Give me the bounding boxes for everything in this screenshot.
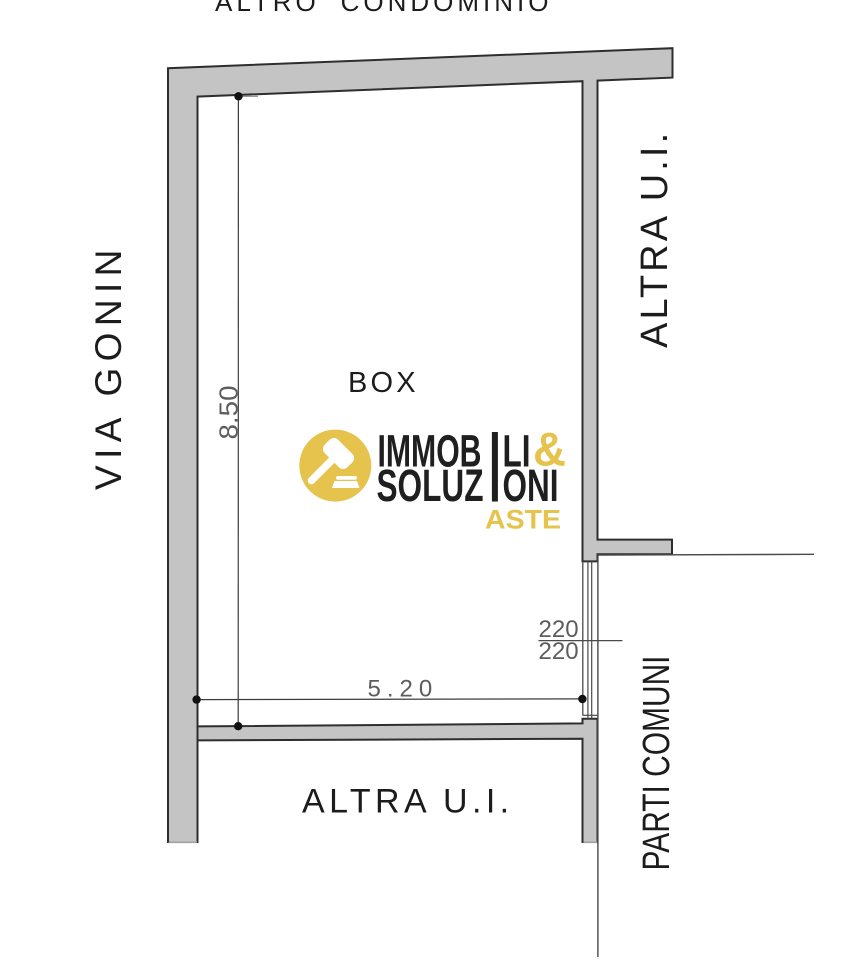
svg-text:ALTRA U.I.: ALTRA U.I. [302, 783, 514, 821]
svg-text:220: 220 [539, 638, 579, 665]
svg-text:SOLUZ: SOLUZ [377, 460, 484, 511]
svg-text:ASTE: ASTE [485, 505, 561, 535]
svg-text:ALTRA U.I.: ALTRA U.I. [634, 130, 676, 348]
svg-text:ALTRO: ALTRO [215, 0, 320, 17]
svg-text:8.50: 8.50 [214, 386, 244, 440]
svg-text:PARTI COMUNI: PARTI COMUNI [636, 656, 678, 871]
svg-text:ONI: ONI [503, 460, 559, 511]
svg-text:5.20: 5.20 [368, 675, 439, 702]
svg-text:CONDOMINIO: CONDOMINIO [341, 0, 553, 17]
svg-text:BOX: BOX [348, 367, 419, 399]
svg-text:VIA GONIN: VIA GONIN [88, 243, 129, 490]
